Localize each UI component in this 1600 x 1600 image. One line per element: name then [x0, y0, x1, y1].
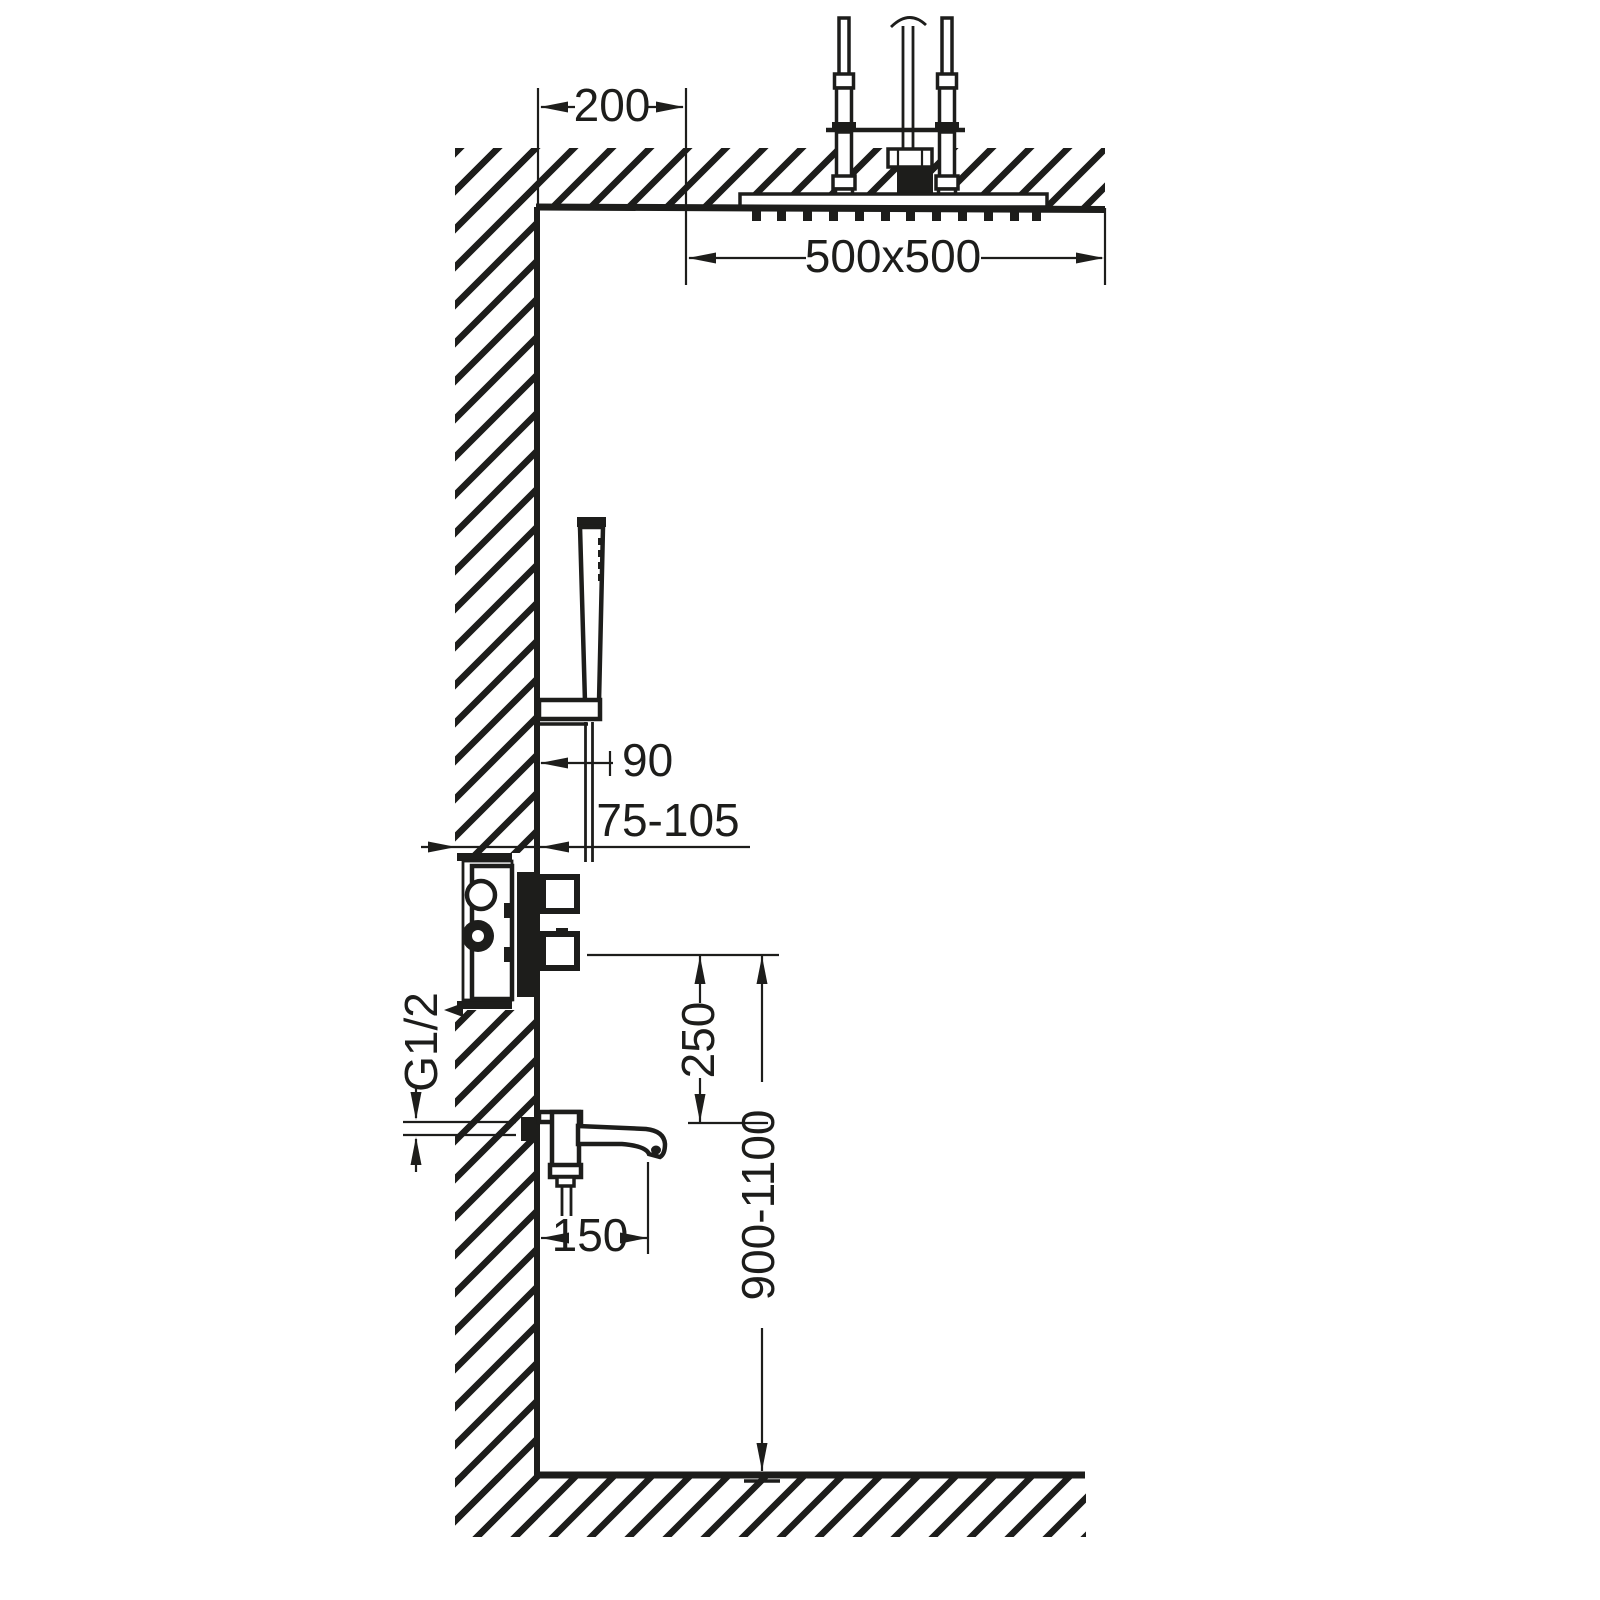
spout-body [552, 1112, 579, 1167]
dim-label-250: 250 [672, 1002, 724, 1079]
arrow-right-icon [656, 102, 684, 113]
dim-label-90: 90 [622, 734, 673, 786]
floor-hatch [455, 1475, 1086, 1537]
wall-hatch [455, 148, 538, 1537]
valve-face-plate [517, 872, 538, 997]
dimension-500x500: 500x500 [688, 208, 1105, 285]
structure [452, 148, 1105, 1537]
dim-label-150: 150 [552, 1209, 629, 1261]
ceiling-line [536, 207, 1105, 210]
arrow-down-icon [757, 1443, 768, 1471]
arrow-down-icon [695, 1094, 706, 1122]
dim-label-900-1100: 900-1100 [732, 1110, 784, 1301]
supply-connector-nut [888, 149, 932, 167]
arrow-left-icon [688, 253, 716, 264]
supply-hose-hook [891, 17, 926, 27]
hand-shower-holder [539, 700, 600, 719]
dim-label-g12: G1/2 [395, 992, 447, 1092]
installation-drawing-page: 200 500x500 90 75-105 250 900-1100 [0, 0, 1600, 1600]
valve-handle-bottom [543, 934, 577, 968]
arrow-up-icon [411, 1137, 422, 1165]
dimension-250: 250 [587, 955, 779, 1123]
thermostatic-valve [444, 853, 577, 1017]
dimension-900-1100: 900-1100 [732, 956, 784, 1481]
arrow-left-icon [540, 102, 568, 113]
dim-label-500x500: 500x500 [805, 230, 982, 282]
mounting-rod-left [832, 18, 856, 202]
dim-label-200: 200 [574, 79, 651, 131]
arrow-left-icon [540, 758, 568, 769]
arrow-up-icon [757, 956, 768, 984]
valve-port-top [467, 881, 495, 909]
mounting-rod-right [935, 18, 959, 202]
arrow-left-icon [541, 842, 569, 853]
arrow-down-icon [411, 1092, 422, 1120]
dimension-90: 90 [540, 734, 673, 786]
supply-connector-block [897, 167, 933, 195]
bath-spout [521, 1112, 665, 1216]
dim-label-75-105: 75-105 [596, 794, 739, 846]
arrow-right-icon [1076, 253, 1104, 264]
valve-handle-top [543, 877, 577, 911]
recess-bottom-edge [457, 1001, 512, 1009]
arrow-up-icon [695, 956, 706, 984]
arrow-right-icon [428, 842, 456, 853]
shower-installation-diagram: 200 500x500 90 75-105 250 900-1100 [0, 0, 1600, 1600]
spout-wall-connection [521, 1117, 539, 1141]
spout-outlet [651, 1146, 661, 1155]
